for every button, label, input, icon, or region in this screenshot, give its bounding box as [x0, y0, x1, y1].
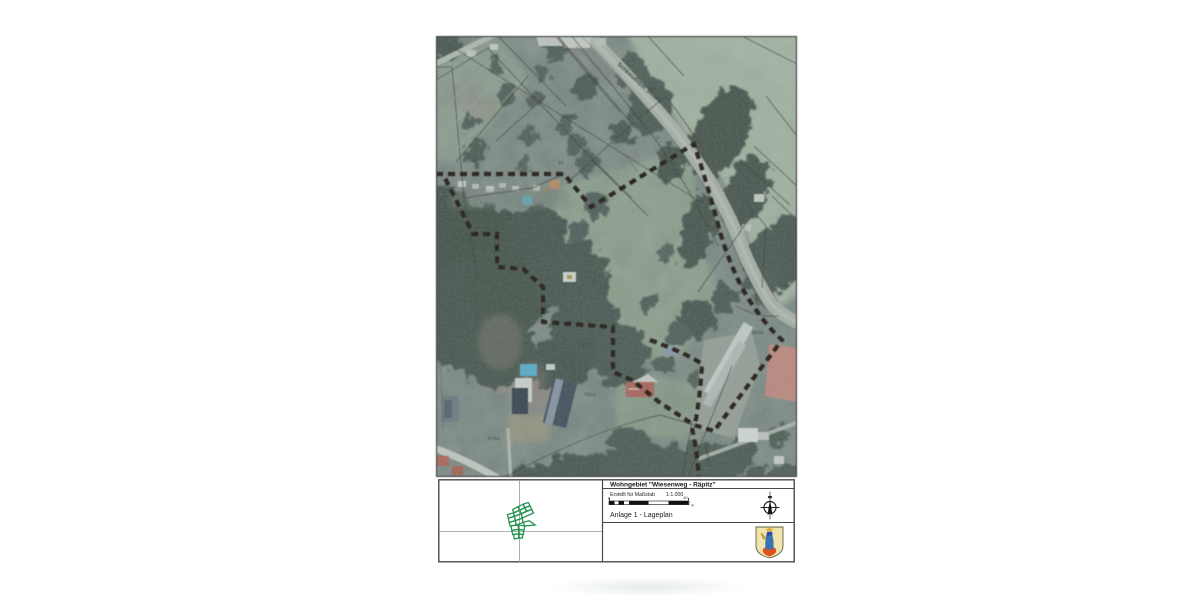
svg-text:Erstellt für Maßstab: Erstellt für Maßstab: [610, 492, 655, 498]
svg-text:m: m: [691, 504, 694, 508]
svg-text:Anlage 1 - Lageplan: Anlage 1 - Lageplan: [610, 512, 673, 519]
svg-text:1:1.000: 1:1.000: [666, 492, 683, 498]
svg-text:40: 40: [684, 496, 688, 500]
svg-text:Wohngebiet "Wiesenweg - Räpitz: Wohngebiet "Wiesenweg - Räpitz": [610, 482, 716, 489]
